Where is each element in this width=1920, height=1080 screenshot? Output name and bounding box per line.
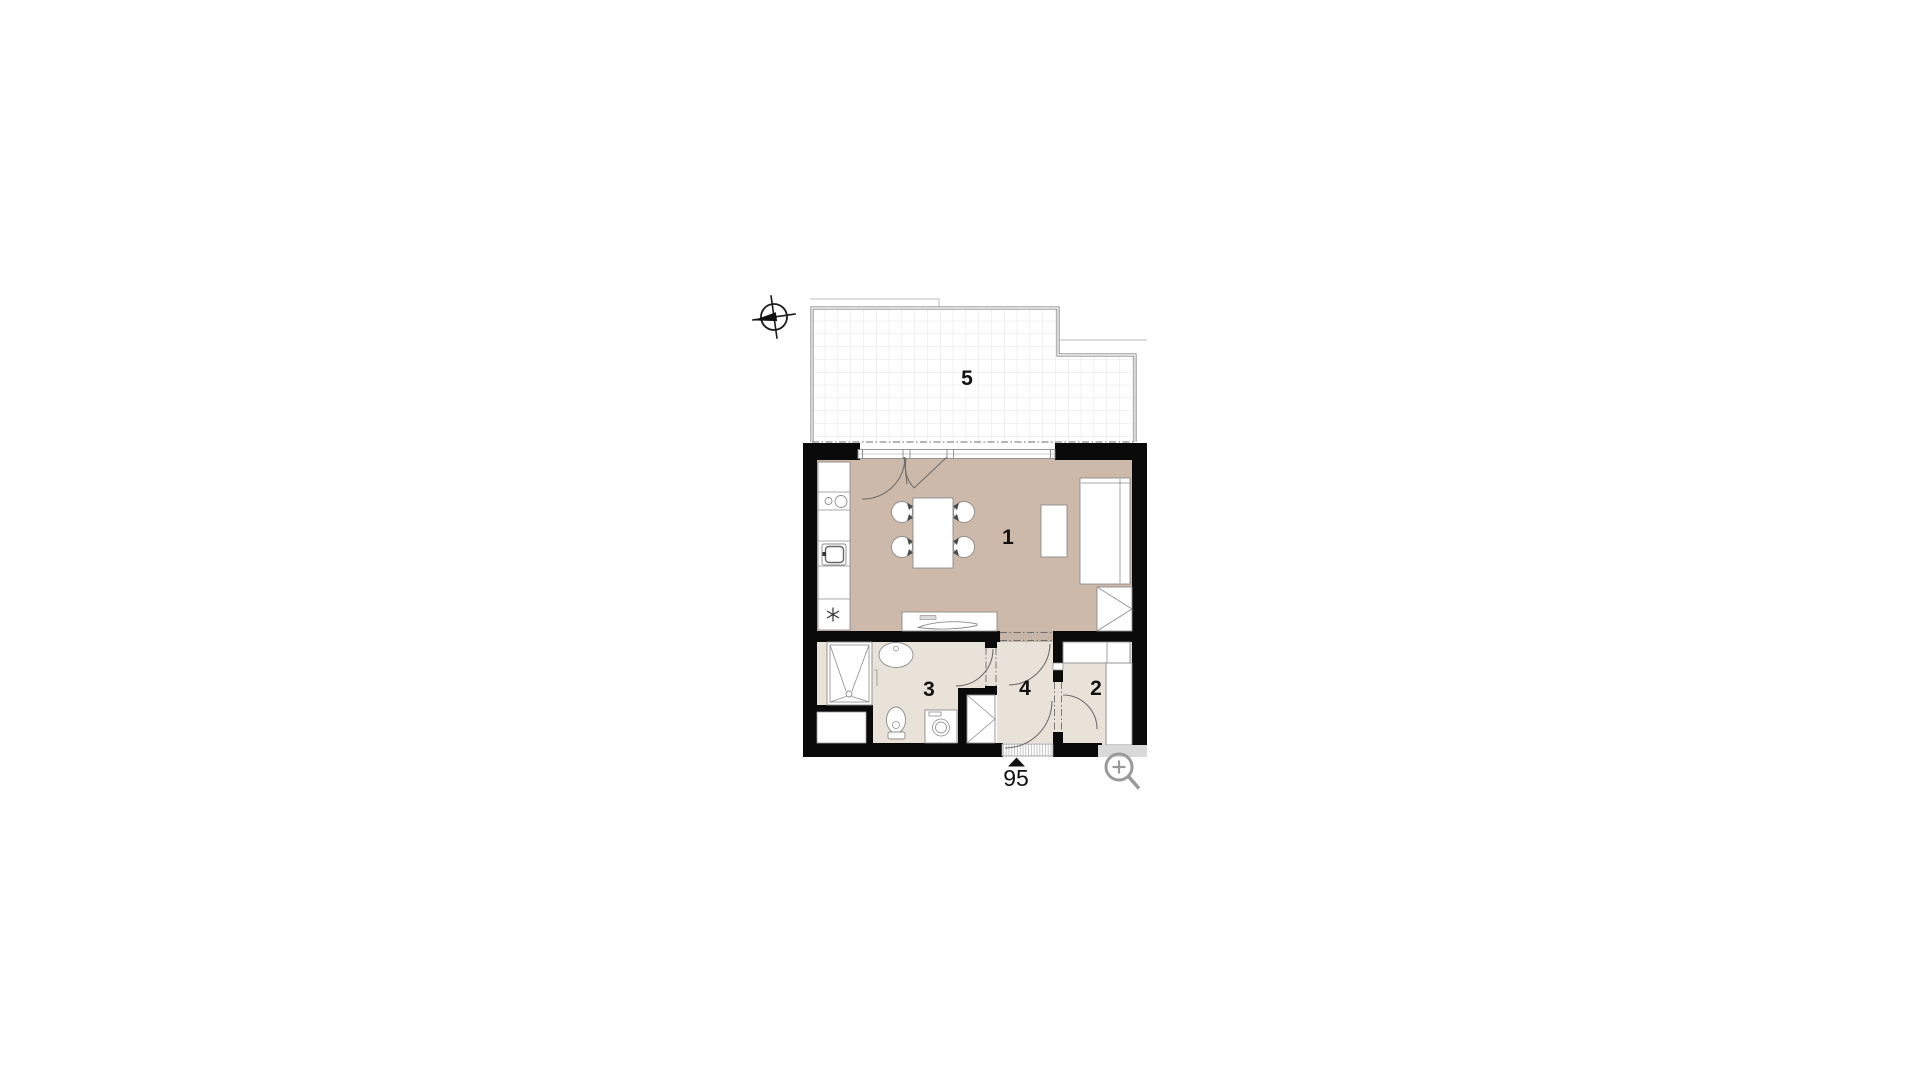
wall-hall-room2-c [1053,732,1063,743]
wall-right [1132,443,1147,745]
wall-niche-box [1053,663,1063,670]
wall-bottom-left [803,743,1003,757]
bed [1080,478,1130,584]
room-label-hallway: 4 [1019,677,1031,700]
washbasin [879,643,913,668]
room2-closet-right [1106,663,1132,745]
terrace-tile-grid [812,308,1135,442]
wall-left [803,443,817,755]
wall-niche-right [866,712,873,743]
hall-closet [967,695,995,743]
sink-bowl-large [835,496,847,508]
sideboard-tv [902,612,997,631]
zoom-in-icon[interactable] [1106,754,1139,789]
dining-table [913,498,953,568]
tv-remote [920,616,936,620]
floor-plan-canvas: 1 2 3 4 5 95 [0,0,1920,1080]
toilet [887,707,906,739]
room-label-bathroom: 3 [923,678,935,701]
kitchen [818,462,850,630]
wardrobe [1097,587,1132,631]
entrance-number: 95 [1003,765,1029,791]
room-label-living: 1 [1002,526,1014,549]
north-indicator-icon [749,292,799,342]
wall-bath-hall-top [985,642,997,648]
entrance-threshold-hatch [1002,744,1053,756]
shaft-niche [817,712,866,743]
hob-knob [823,552,827,556]
wall-hall-room2-a [1053,642,1063,663]
coffee-table [1041,505,1067,557]
bathroom-door-opening [985,648,997,686]
sink-bowl-small [825,498,832,505]
room2-closet-top [1063,642,1130,663]
entrance-marker: 95 [1003,758,1029,792]
wall-below-shower [817,705,873,712]
shower-drain [846,691,852,697]
zoom-control[interactable] [1098,745,1147,789]
floor-plan-drawing: 1 2 3 4 5 95 [0,0,1920,1080]
wall-top-left [803,443,860,460]
wall-bottom-right [1053,743,1102,757]
washing-machine [925,710,957,743]
wall-closet-left [958,688,967,757]
wall-hall-room2-b [1053,670,1063,682]
room-label-room2: 2 [1090,677,1102,700]
room-label-terrace: 5 [961,367,973,390]
terrace [810,299,1147,442]
wall-living-south-left [817,631,1000,642]
wall-living-south-right [1053,631,1132,642]
shower [827,642,877,705]
